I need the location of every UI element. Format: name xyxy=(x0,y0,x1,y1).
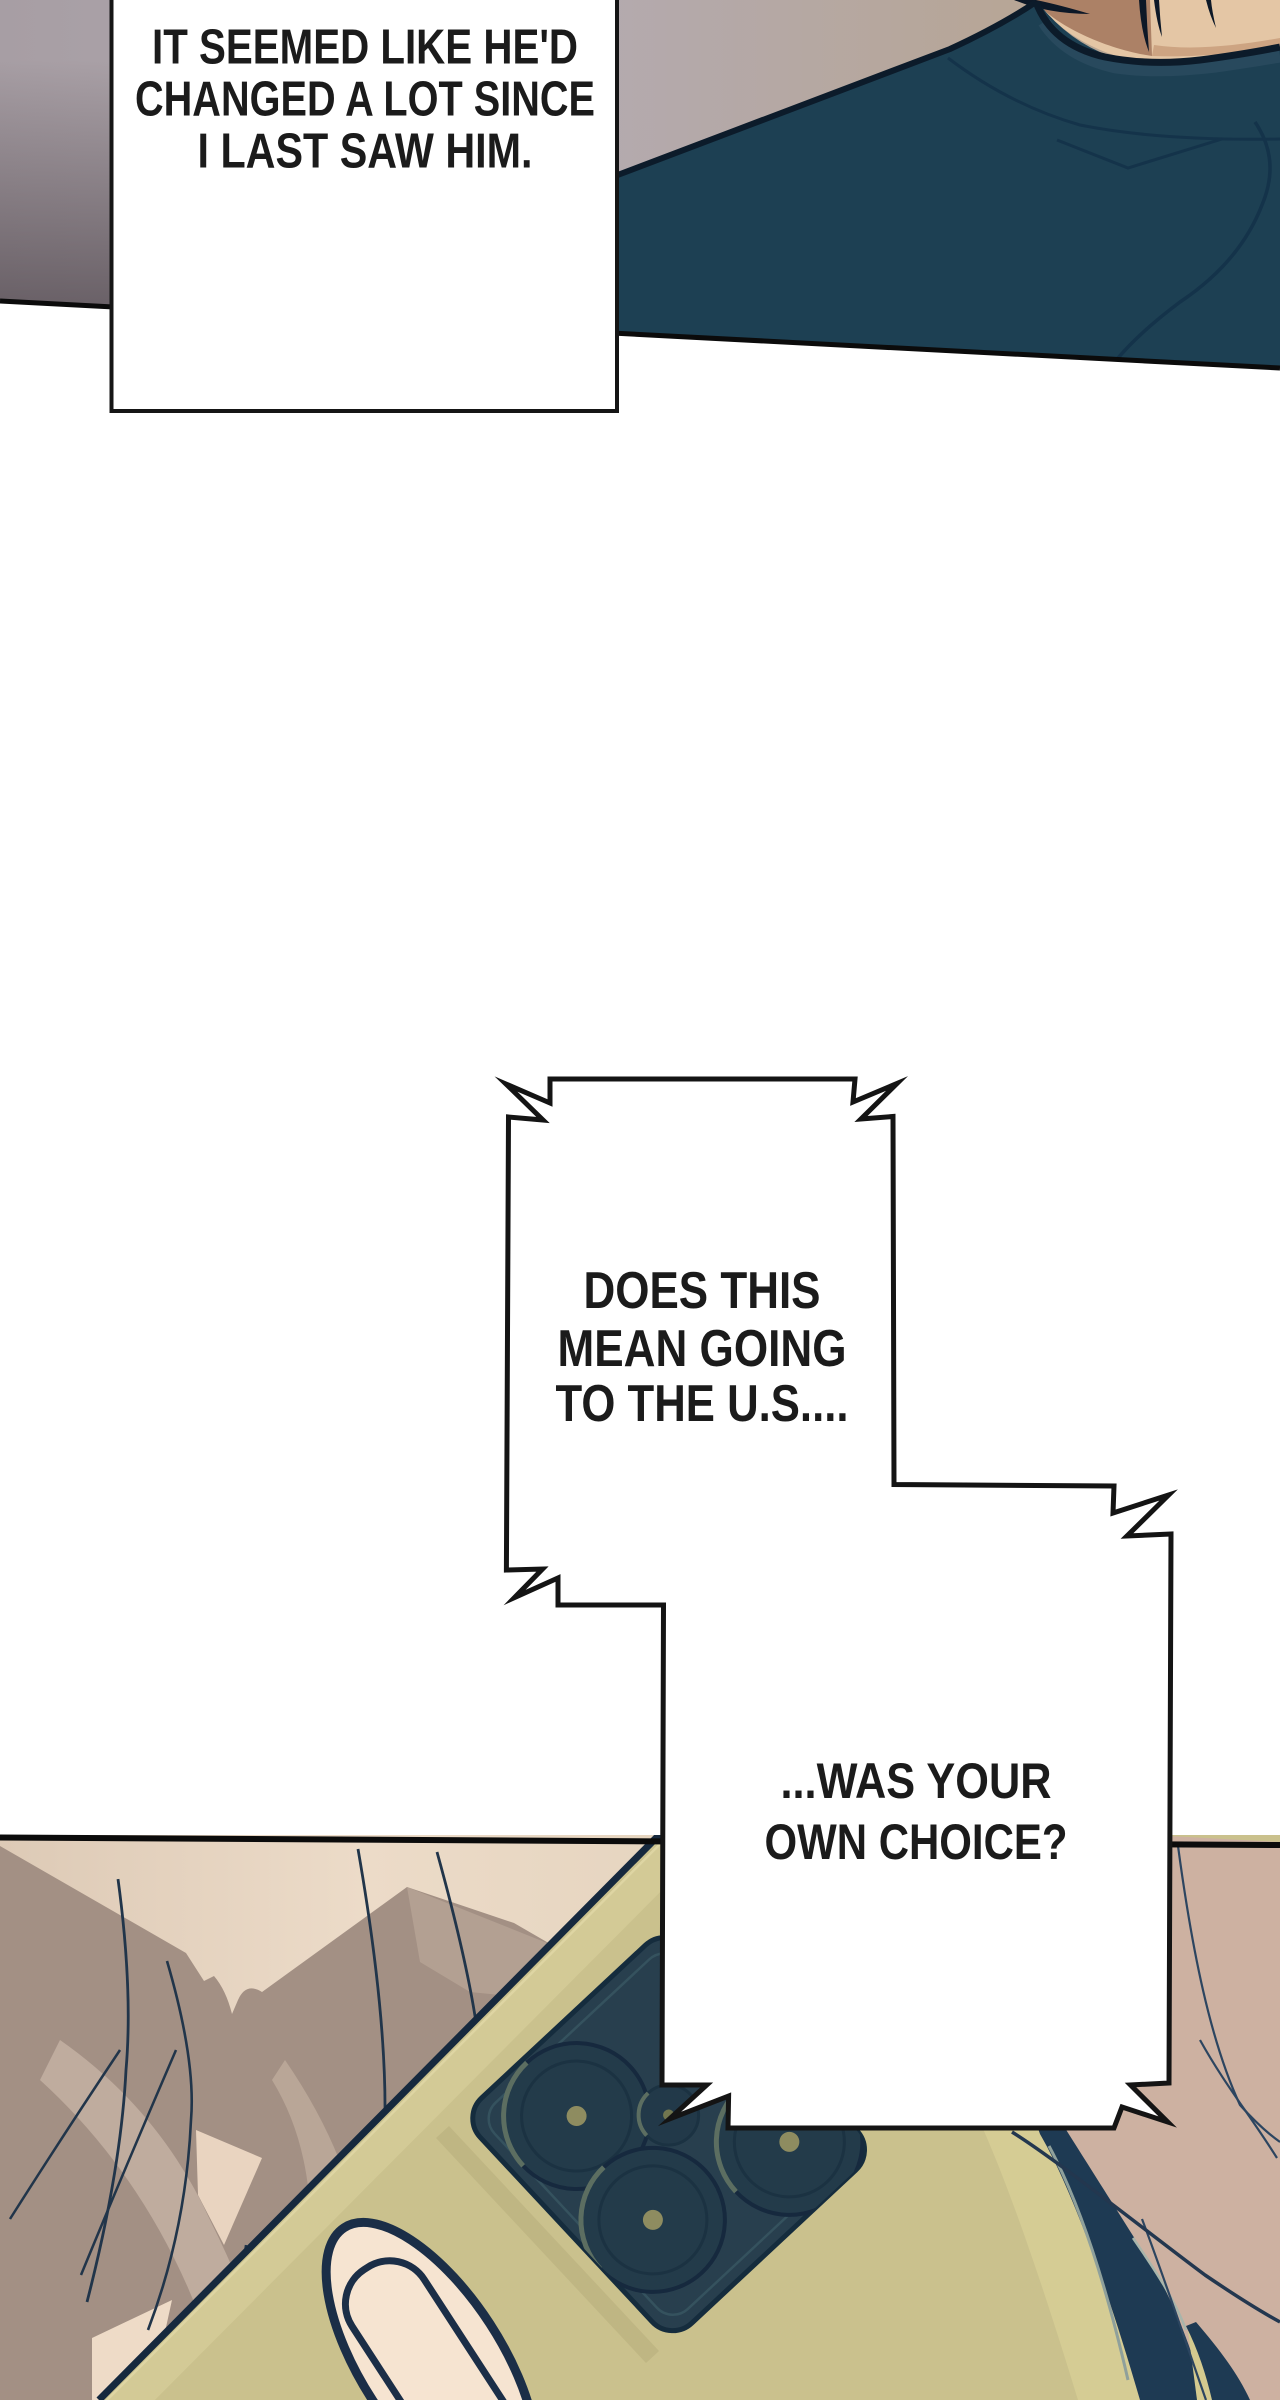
svg-text:CHANGED A LOT SINCE: CHANGED A LOT SINCE xyxy=(135,73,595,127)
svg-text:I LAST SAW HIM.: I LAST SAW HIM. xyxy=(198,125,533,179)
svg-text:IT SEEMED LIKE HE'D: IT SEEMED LIKE HE'D xyxy=(152,21,578,75)
svg-text:OWN CHOICE?: OWN CHOICE? xyxy=(765,1814,1068,1870)
svg-text:...WAS YOUR: ...WAS YOUR xyxy=(781,1753,1052,1809)
svg-text:MEAN GOING: MEAN GOING xyxy=(558,1320,847,1378)
svg-text:DOES THIS: DOES THIS xyxy=(584,1262,821,1320)
svg-text:TO THE U.S....: TO THE U.S.... xyxy=(556,1375,849,1433)
